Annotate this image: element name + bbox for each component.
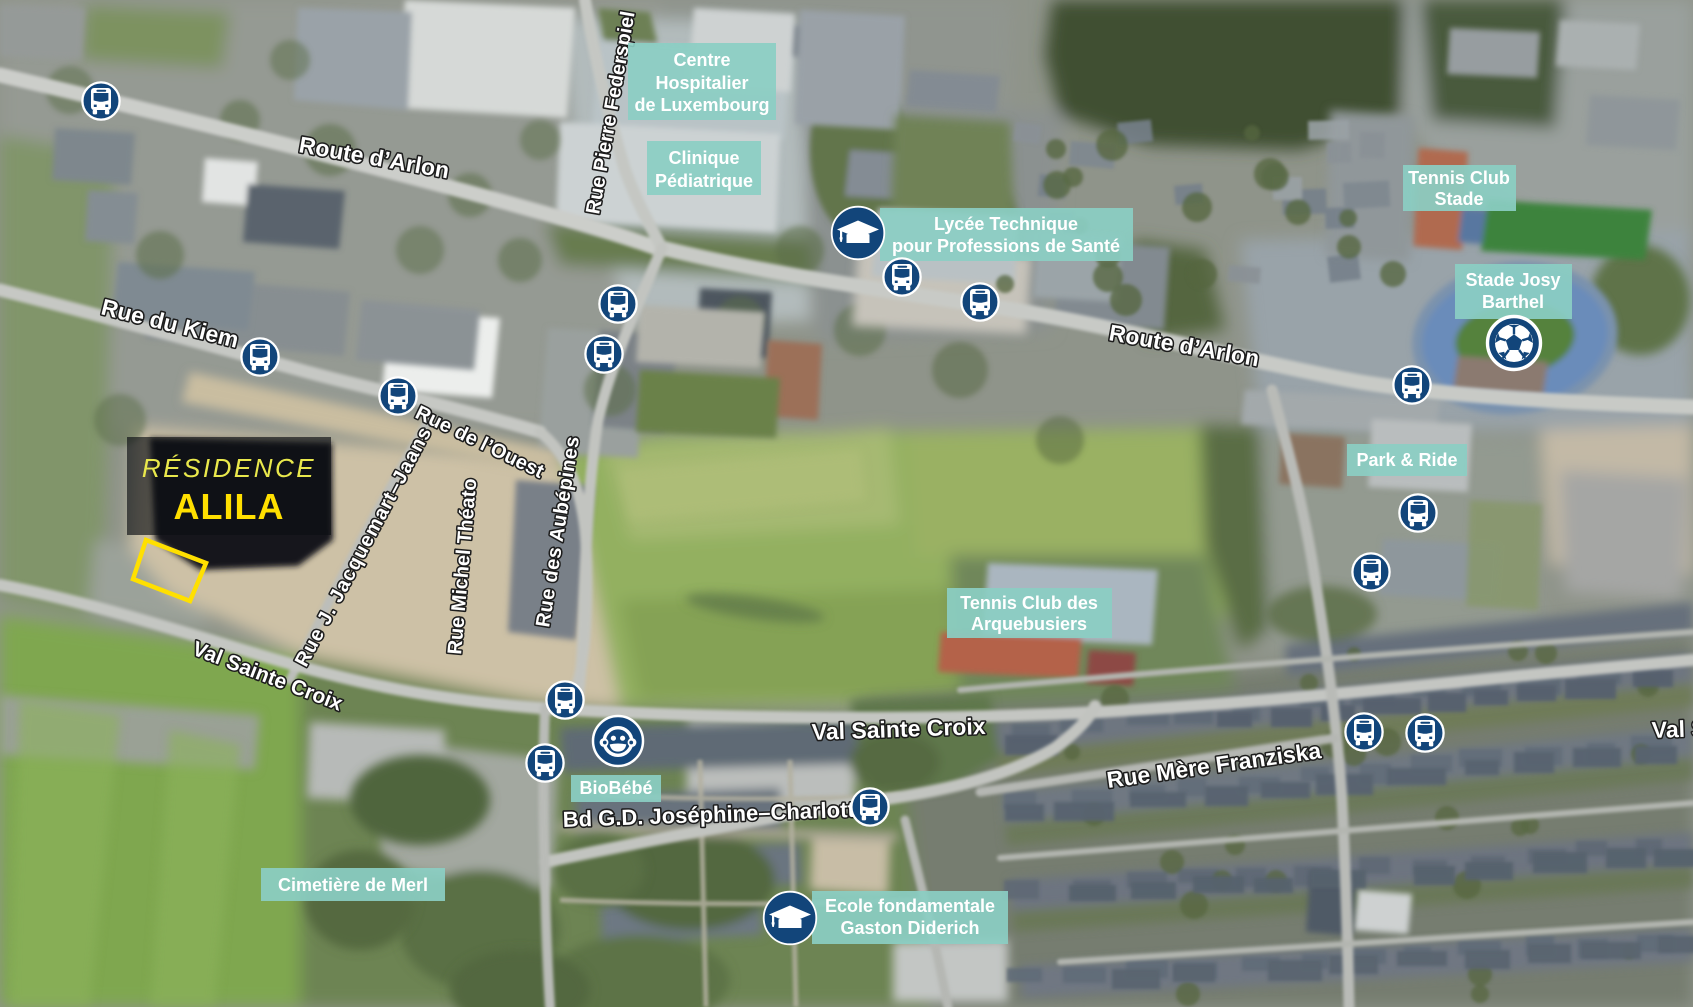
svg-text:Hospitalier: Hospitalier [655, 73, 748, 93]
svg-text:Park & Ride: Park & Ride [1356, 450, 1457, 470]
svg-text:Tennis Club: Tennis Club [1408, 168, 1510, 188]
svg-text:Arquebusiers: Arquebusiers [971, 614, 1087, 634]
svg-text:Cimetière de Merl: Cimetière de Merl [278, 875, 428, 895]
svg-text:BioBébé: BioBébé [579, 778, 652, 798]
svg-text:Clinique: Clinique [669, 148, 740, 168]
svg-text:ALILA: ALILA [174, 486, 285, 527]
svg-text:Stade Josy: Stade Josy [1465, 270, 1560, 290]
svg-text:Val S: Val S [1651, 715, 1693, 743]
svg-text:Ecole fondamentale: Ecole fondamentale [825, 896, 995, 916]
svg-text:de Luxembourg: de Luxembourg [634, 95, 769, 115]
svg-text:Lycée Technique: Lycée Technique [934, 214, 1078, 234]
svg-text:Gaston Diderich: Gaston Diderich [840, 918, 979, 938]
svg-text:Stade: Stade [1434, 189, 1483, 209]
svg-text:Tennis Club des: Tennis Club des [960, 593, 1098, 613]
svg-text:Barthel: Barthel [1482, 292, 1544, 312]
svg-text:Centre: Centre [673, 50, 730, 70]
svg-text:RÉSIDENCE: RÉSIDENCE [142, 453, 316, 483]
svg-text:pour Professions de Santé: pour Professions de Santé [892, 236, 1120, 256]
svg-text:Pédiatrique: Pédiatrique [655, 171, 753, 191]
